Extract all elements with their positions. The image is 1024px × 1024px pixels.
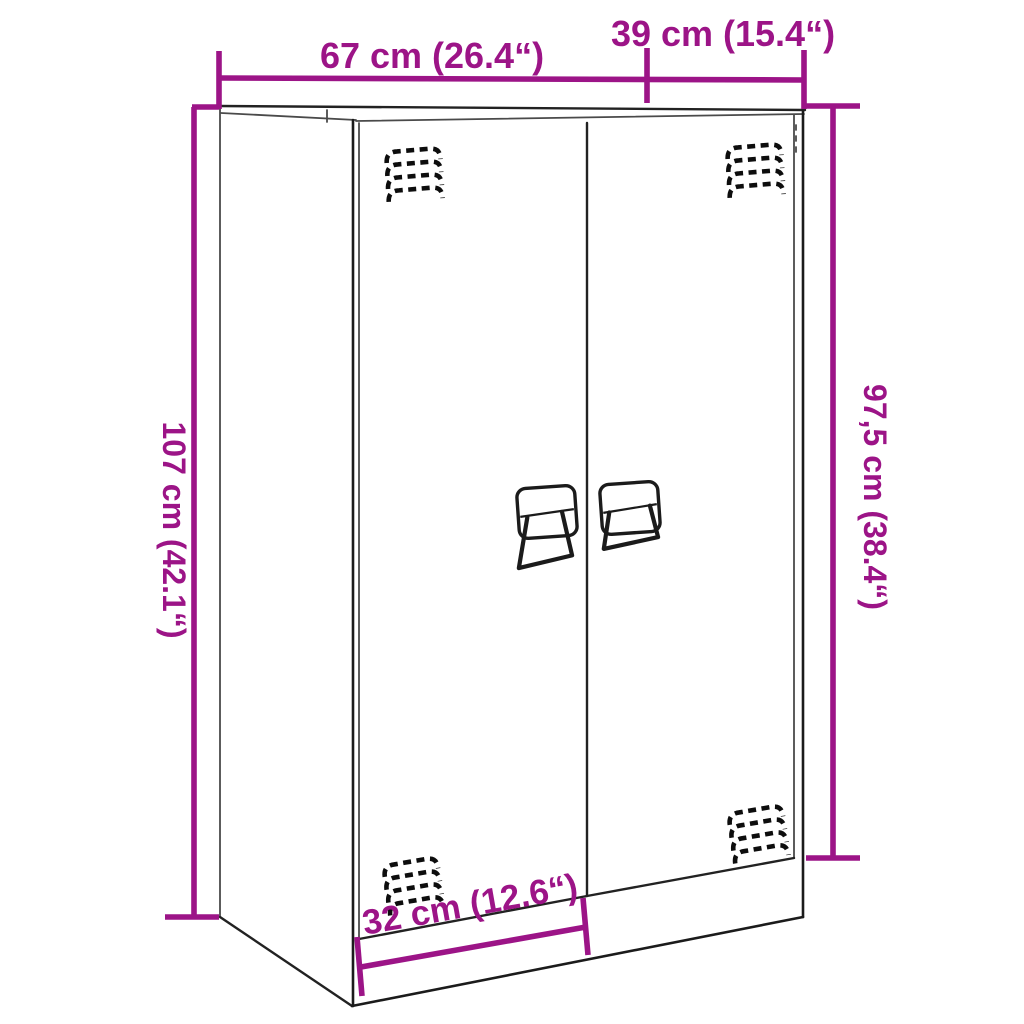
- right-door-handle: [599, 481, 661, 549]
- dimension-right-height: 97,5 cm (38.4“): [806, 106, 893, 858]
- height-dimension-label: 107 cm (42.1“): [156, 421, 192, 638]
- side-height-dimension-label: 97,5 cm (38.4“): [857, 384, 893, 610]
- depth-dimension-label: 39 cm (15.4“): [611, 13, 835, 54]
- vent-bottom-right-icon: [728, 805, 789, 863]
- top-front-edge: [356, 114, 804, 121]
- width-dimension-label: 67 cm (26.4“): [320, 35, 544, 76]
- bottom-right-bar: [583, 898, 588, 955]
- dimension-door-width: 32 cm (12.6“): [357, 867, 588, 996]
- left-door-handle: [513, 485, 579, 568]
- top-left-side-edge: [221, 113, 356, 120]
- vent-top-right-icon: [727, 144, 784, 198]
- dimension-left-height: 107 cm (42.1“): [156, 107, 219, 917]
- top-dimension-line: [219, 78, 804, 80]
- left-bottom-slope: [220, 917, 352, 1006]
- cabinet-diagram: 67 cm (26.4“) 39 cm (15.4“) 107 cm (42.1…: [0, 0, 1024, 1024]
- bottom-left-bar: [357, 937, 362, 996]
- cabinet-outline: [219, 106, 805, 1006]
- dimension-top: 67 cm (26.4“) 39 cm (15.4“): [192, 13, 860, 109]
- vent-top-left-icon: [386, 148, 443, 202]
- top-back-edge: [219, 106, 805, 110]
- dimension-diagram-canvas: 67 cm (26.4“) 39 cm (15.4“) 107 cm (42.1…: [0, 0, 1024, 1024]
